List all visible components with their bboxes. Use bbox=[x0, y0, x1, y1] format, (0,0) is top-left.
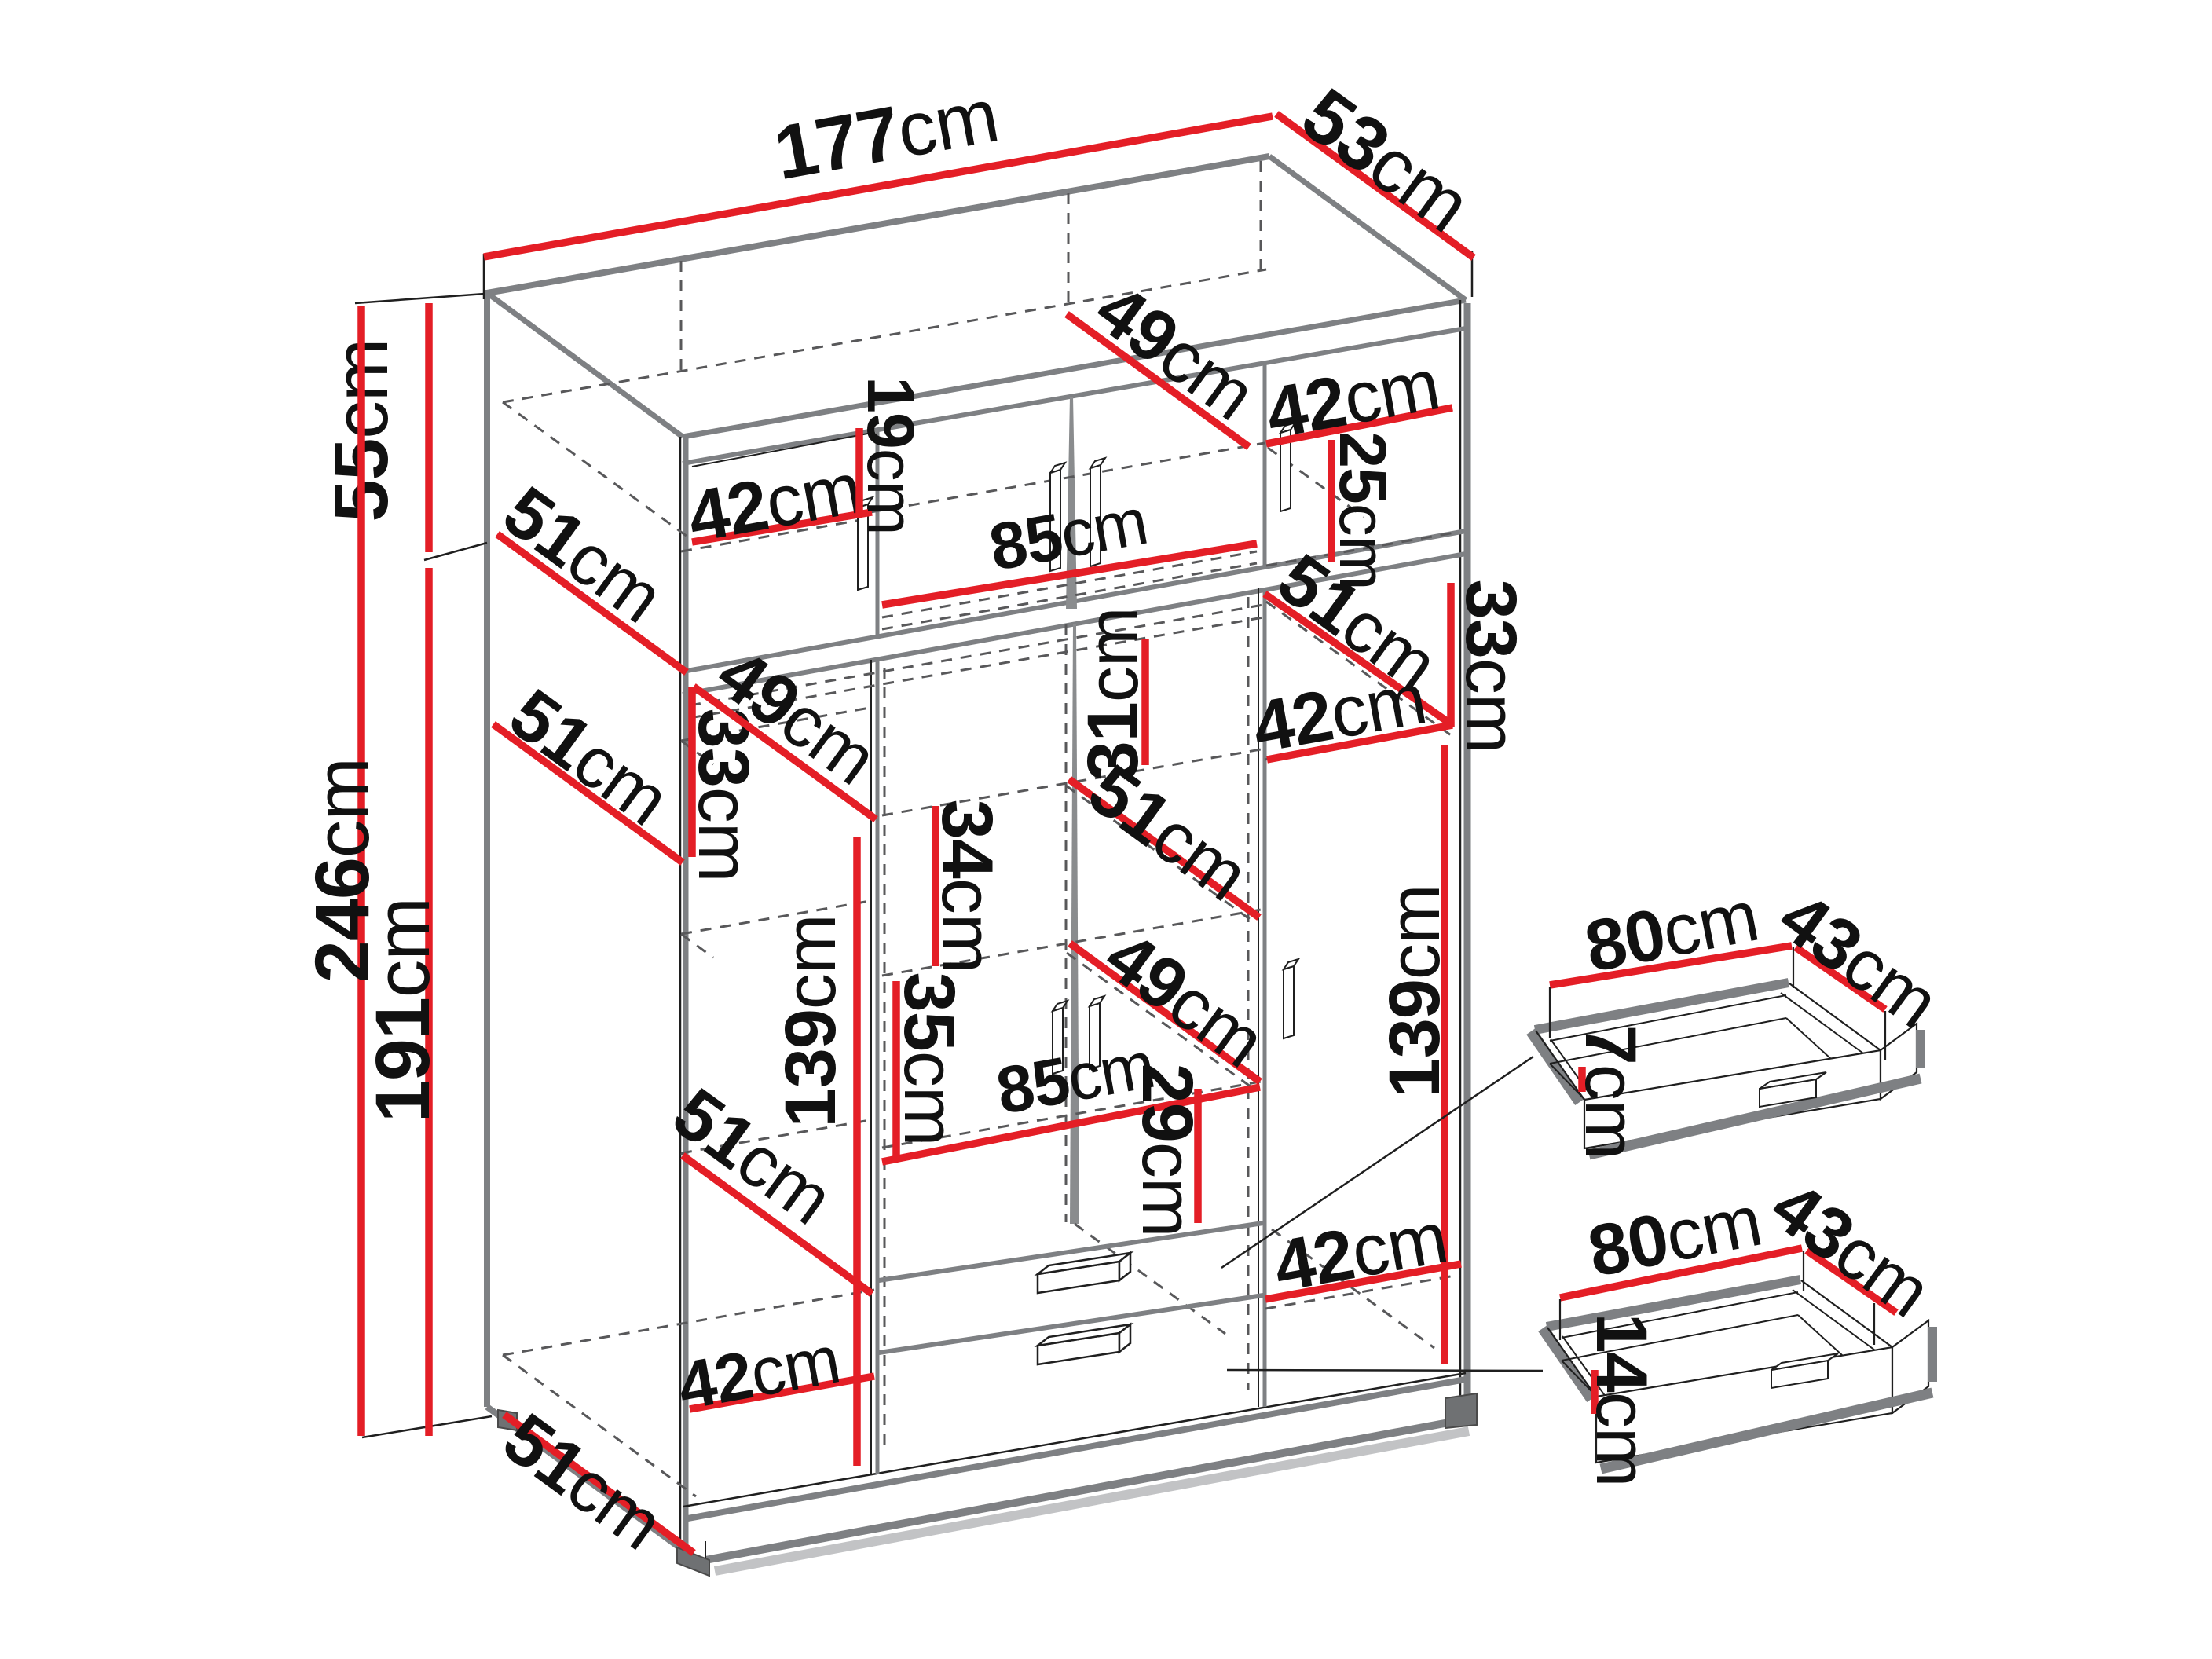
svg-text:29cm: 29cm bbox=[1127, 1064, 1207, 1237]
svg-text:33cm: 33cm bbox=[683, 709, 764, 882]
svg-text:14cm: 14cm bbox=[1581, 1313, 1661, 1487]
svg-text:139cm: 139cm bbox=[771, 914, 851, 1127]
svg-text:33cm: 33cm bbox=[1451, 580, 1531, 753]
svg-text:31cm: 31cm bbox=[1073, 608, 1153, 782]
svg-text:191cm: 191cm bbox=[360, 898, 445, 1122]
svg-text:35cm: 35cm bbox=[889, 972, 969, 1146]
svg-text:19cm: 19cm bbox=[854, 376, 928, 534]
svg-text:139cm: 139cm bbox=[1375, 884, 1455, 1097]
svg-text:7cm: 7cm bbox=[1570, 1025, 1650, 1159]
svg-text:34cm: 34cm bbox=[927, 800, 1007, 973]
